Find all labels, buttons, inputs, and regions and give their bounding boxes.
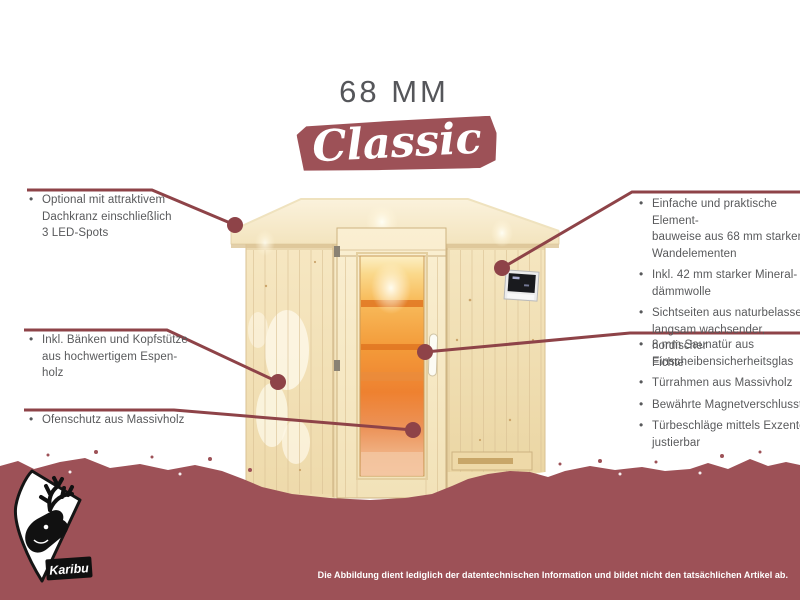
sauna-illustration bbox=[231, 199, 559, 498]
feature-item-dachkranz: • Optional mit attraktivem Dachkranz ein… bbox=[42, 192, 202, 242]
feature-text: Bewährte Magnetverschlusstechnik bbox=[652, 397, 800, 414]
control-panel bbox=[504, 270, 539, 301]
callout-dot-ofenschutz bbox=[405, 422, 421, 438]
karibu-logo-label: Karibu bbox=[45, 556, 92, 580]
feature-item-saunatuer: • 8 mm Saunatür aus Einscheibensicherhei… bbox=[652, 337, 800, 370]
door-hinge-icon bbox=[334, 246, 340, 257]
feature-text: Ofenschutz aus Massivholz bbox=[42, 412, 232, 429]
interior-lamp-glow bbox=[371, 262, 411, 314]
page: Karibu 68 MM Classic • Optional mit attr… bbox=[0, 0, 800, 600]
product-title: 68 MM bbox=[0, 74, 794, 110]
bullet-icon: • bbox=[639, 336, 643, 353]
callout-dot-door bbox=[417, 344, 433, 360]
feature-text: Inkl. 42 mm starker Mineral- dämmwolle bbox=[652, 267, 800, 300]
footer-disclaimer: Die Abbildung dient lediglich der datent… bbox=[318, 570, 788, 580]
bullet-icon: • bbox=[639, 396, 643, 413]
feature-text: Türrahmen aus Massivholz bbox=[652, 375, 800, 392]
karibu-logo-text: Karibu bbox=[49, 561, 90, 578]
callout-dot-walls bbox=[494, 260, 510, 276]
bullet-icon: • bbox=[29, 191, 33, 208]
feature-item-elementbauweise: • Einfache und praktische Element- bauwe… bbox=[652, 196, 800, 262]
door-hinge-icon bbox=[334, 360, 340, 371]
feature-text: Optional mit attraktivem Dachkranz einsc… bbox=[42, 192, 202, 242]
sauna-door bbox=[334, 228, 446, 498]
bullet-icon: • bbox=[29, 411, 33, 428]
feature-item-mineralwolle: • Inkl. 42 mm starker Mineral- dämmwolle bbox=[652, 267, 800, 300]
feature-text: Türbeschläge mittels Exzenter justierbar bbox=[652, 418, 800, 451]
feature-item-magnetverschluss: • Bewährte Magnetverschlusstechnik bbox=[652, 397, 800, 414]
bullet-icon: • bbox=[639, 266, 643, 283]
led-spot-glow bbox=[255, 230, 275, 256]
control-panel-display bbox=[508, 273, 536, 293]
air-vent bbox=[452, 452, 532, 470]
bullet-icon: • bbox=[29, 331, 33, 348]
feature-text: Einfache und praktische Element- bauweis… bbox=[652, 196, 800, 262]
bullet-icon: • bbox=[639, 195, 643, 212]
feature-group-right-bottom: • 8 mm Saunatür aus Einscheibensicherhei… bbox=[652, 337, 800, 456]
feature-text: 8 mm Saunatür aus Einscheibensicherheits… bbox=[652, 337, 800, 370]
feature-text: Inkl. Bänken und Kopfstütze aus hochwert… bbox=[42, 332, 212, 382]
feature-item-tuerrahmen: • Türrahmen aus Massivholz bbox=[652, 375, 800, 392]
callout-dot-roof bbox=[227, 217, 243, 233]
bullet-icon: • bbox=[639, 374, 643, 391]
led-spot-glow bbox=[491, 219, 513, 247]
feature-item-tuerbeschlaege: • Türbeschläge mittels Exzenter justierb… bbox=[652, 418, 800, 451]
callout-dot-bench bbox=[270, 374, 286, 390]
bullet-icon: • bbox=[639, 417, 643, 434]
feature-item-baenke: • Inkl. Bänken und Kopfstütze aus hochwe… bbox=[42, 332, 212, 382]
feature-item-ofenschutz: • Ofenschutz aus Massivholz bbox=[42, 412, 232, 429]
bullet-icon: • bbox=[639, 304, 643, 321]
